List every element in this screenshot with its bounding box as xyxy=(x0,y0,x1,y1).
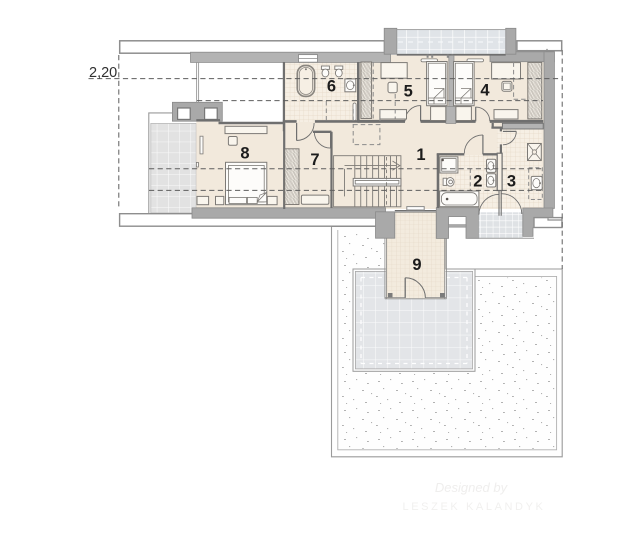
svg-text:6: 6 xyxy=(327,78,336,96)
svg-text:3: 3 xyxy=(507,173,516,191)
svg-text:LESZEK KALANDYK: LESZEK KALANDYK xyxy=(403,501,546,513)
svg-text:9: 9 xyxy=(412,256,421,274)
svg-text:4: 4 xyxy=(480,82,490,100)
svg-text:7: 7 xyxy=(310,151,319,169)
svg-text:2: 2 xyxy=(473,173,482,191)
svg-text:8: 8 xyxy=(240,144,249,162)
svg-text:5: 5 xyxy=(404,82,413,100)
svg-text:1: 1 xyxy=(416,146,425,164)
svg-text:2,20: 2,20 xyxy=(89,65,117,81)
svg-text:Designed by: Designed by xyxy=(435,480,509,495)
